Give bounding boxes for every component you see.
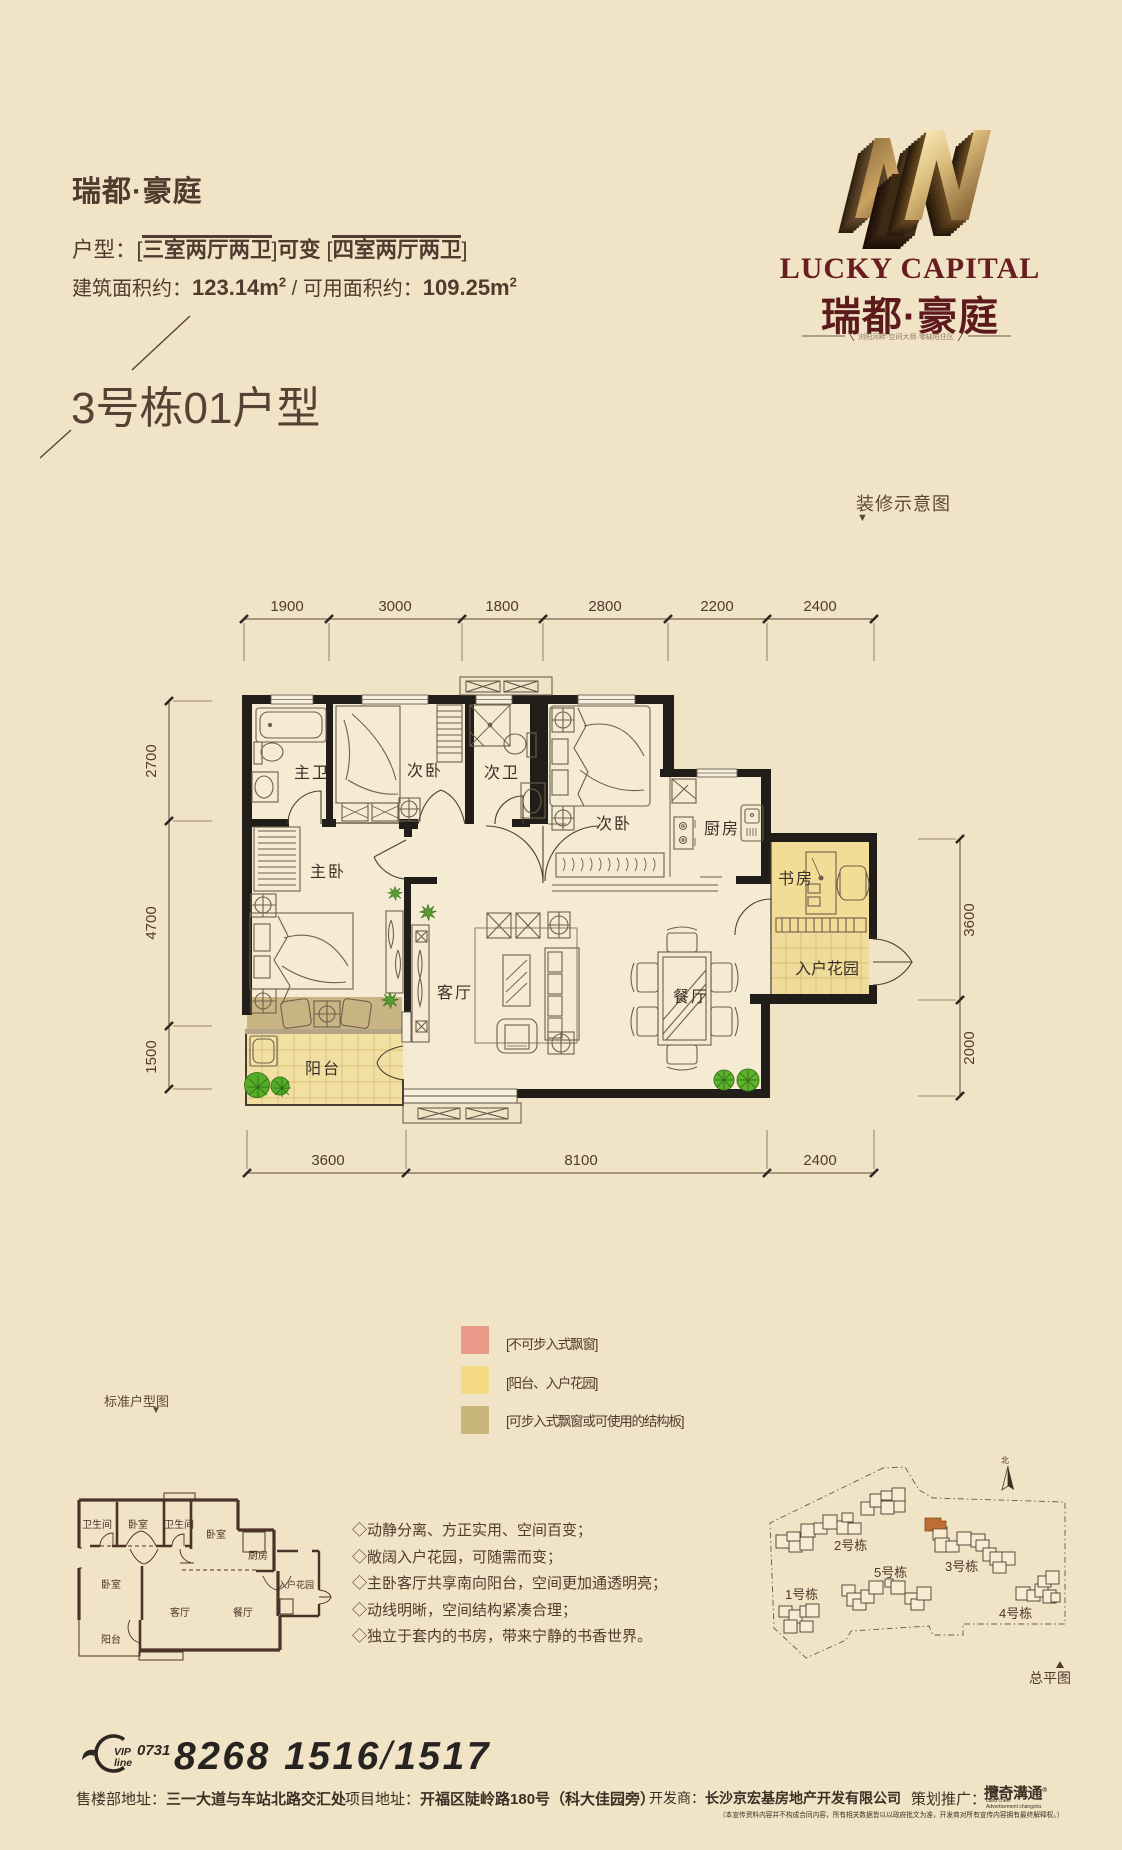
svg-text:入户花园: 入户花园: [278, 1579, 314, 1590]
svg-text:客厅: 客厅: [170, 1606, 190, 1619]
svg-text:卧室: 卧室: [206, 1528, 226, 1541]
svg-text:次卫: 次卫: [484, 764, 520, 782]
svg-text:2200: 2200: [700, 598, 733, 615]
svg-text:餐厅: 餐厅: [673, 988, 709, 1006]
svg-text:8100: 8100: [564, 1152, 597, 1169]
svg-text:浏阳河畔·空间大师·零缺陷住区: 浏阳河畔·空间大师·零缺陷住区: [858, 332, 954, 341]
svg-text:2000: 2000: [961, 1031, 978, 1064]
svg-text:餐厅: 餐厅: [233, 1606, 253, 1619]
svg-text:1800: 1800: [485, 598, 518, 615]
svg-text:主卫: 主卫: [294, 764, 330, 782]
svg-text:次卧: 次卧: [596, 815, 632, 833]
svg-text:1号栋: 1号栋: [785, 1587, 818, 1602]
svg-text:2400: 2400: [803, 1152, 836, 1169]
svg-text:2400: 2400: [803, 598, 836, 615]
svg-text:入户花园: 入户花园: [795, 960, 859, 978]
svg-text:3600: 3600: [311, 1152, 344, 1169]
svg-text:书房: 书房: [778, 870, 814, 888]
svg-text:3号栋: 3号栋: [945, 1559, 978, 1574]
svg-text:阳台: 阳台: [101, 1633, 121, 1646]
svg-text:厨房: 厨房: [704, 820, 740, 838]
svg-text:卫生间: 卫生间: [164, 1518, 194, 1531]
svg-text:4700: 4700: [143, 906, 160, 939]
svg-text:卫生间: 卫生间: [82, 1518, 112, 1531]
svg-text:2700: 2700: [143, 744, 160, 777]
svg-text:阳台: 阳台: [305, 1060, 341, 1078]
svg-text:2号栋: 2号栋: [834, 1538, 867, 1553]
svg-text:5号栋: 5号栋: [874, 1565, 907, 1580]
svg-text:厨房: 厨房: [248, 1549, 268, 1562]
svg-text:总平图: 总平图: [1029, 1670, 1071, 1686]
svg-text:1900: 1900: [270, 598, 303, 615]
svg-text:主卧: 主卧: [310, 863, 346, 881]
svg-text:客厅: 客厅: [437, 984, 473, 1002]
svg-text:卧室: 卧室: [101, 1578, 121, 1591]
svg-text:1500: 1500: [143, 1040, 160, 1073]
svg-text:3600: 3600: [961, 903, 978, 936]
svg-text:4号栋: 4号栋: [999, 1606, 1032, 1621]
svg-text:北: 北: [1001, 1456, 1009, 1465]
svg-text:3000: 3000: [378, 598, 411, 615]
svg-text:次卧: 次卧: [407, 762, 443, 780]
svg-text:2800: 2800: [588, 598, 621, 615]
svg-text:卧室: 卧室: [128, 1518, 148, 1531]
